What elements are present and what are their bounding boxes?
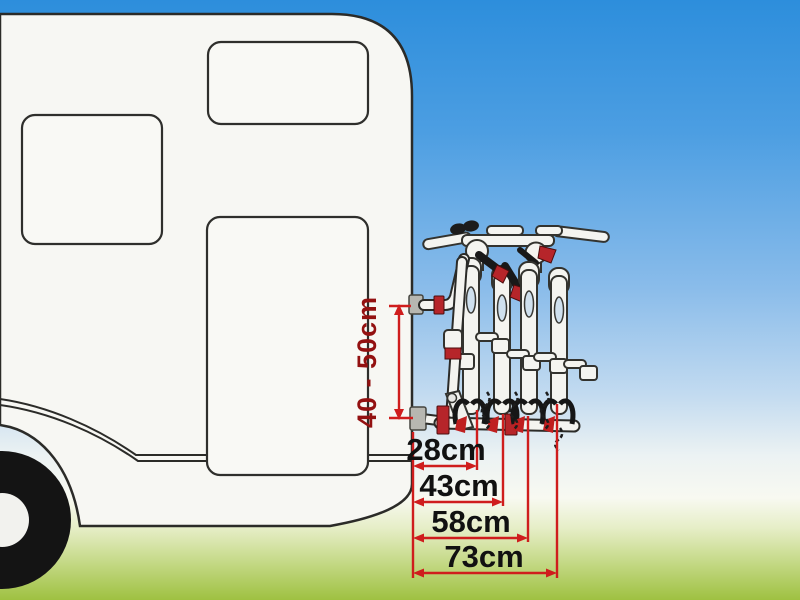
- window-top-right: [208, 42, 368, 124]
- window-lower: [207, 217, 368, 475]
- dimension-label-43cm: 43cm: [419, 468, 498, 503]
- window-left: [22, 115, 162, 244]
- dimension-label-58cm: 58cm: [431, 504, 510, 539]
- dimension-label-vertical: 40 - 50cm: [352, 296, 382, 428]
- post-red-ring: [445, 348, 461, 359]
- upper-arm-red-clamp: [434, 296, 444, 314]
- rail-red-block-1: [437, 406, 449, 434]
- bike-fork-4: [549, 268, 569, 414]
- diagram-canvas: 40 - 50cm 28cm 43cm 58cm: [0, 0, 800, 600]
- caravan-bike-rack-diagram: 40 - 50cm 28cm 43cm 58cm: [0, 0, 800, 600]
- bike-fork-3: [519, 262, 539, 414]
- dimension-label-28cm: 28cm: [406, 432, 485, 467]
- dimension-28cm: 28cm: [406, 432, 485, 471]
- dimension-label-73cm: 73cm: [444, 539, 523, 574]
- caravan: [0, 14, 412, 589]
- dimension-43cm: 43cm: [413, 468, 503, 507]
